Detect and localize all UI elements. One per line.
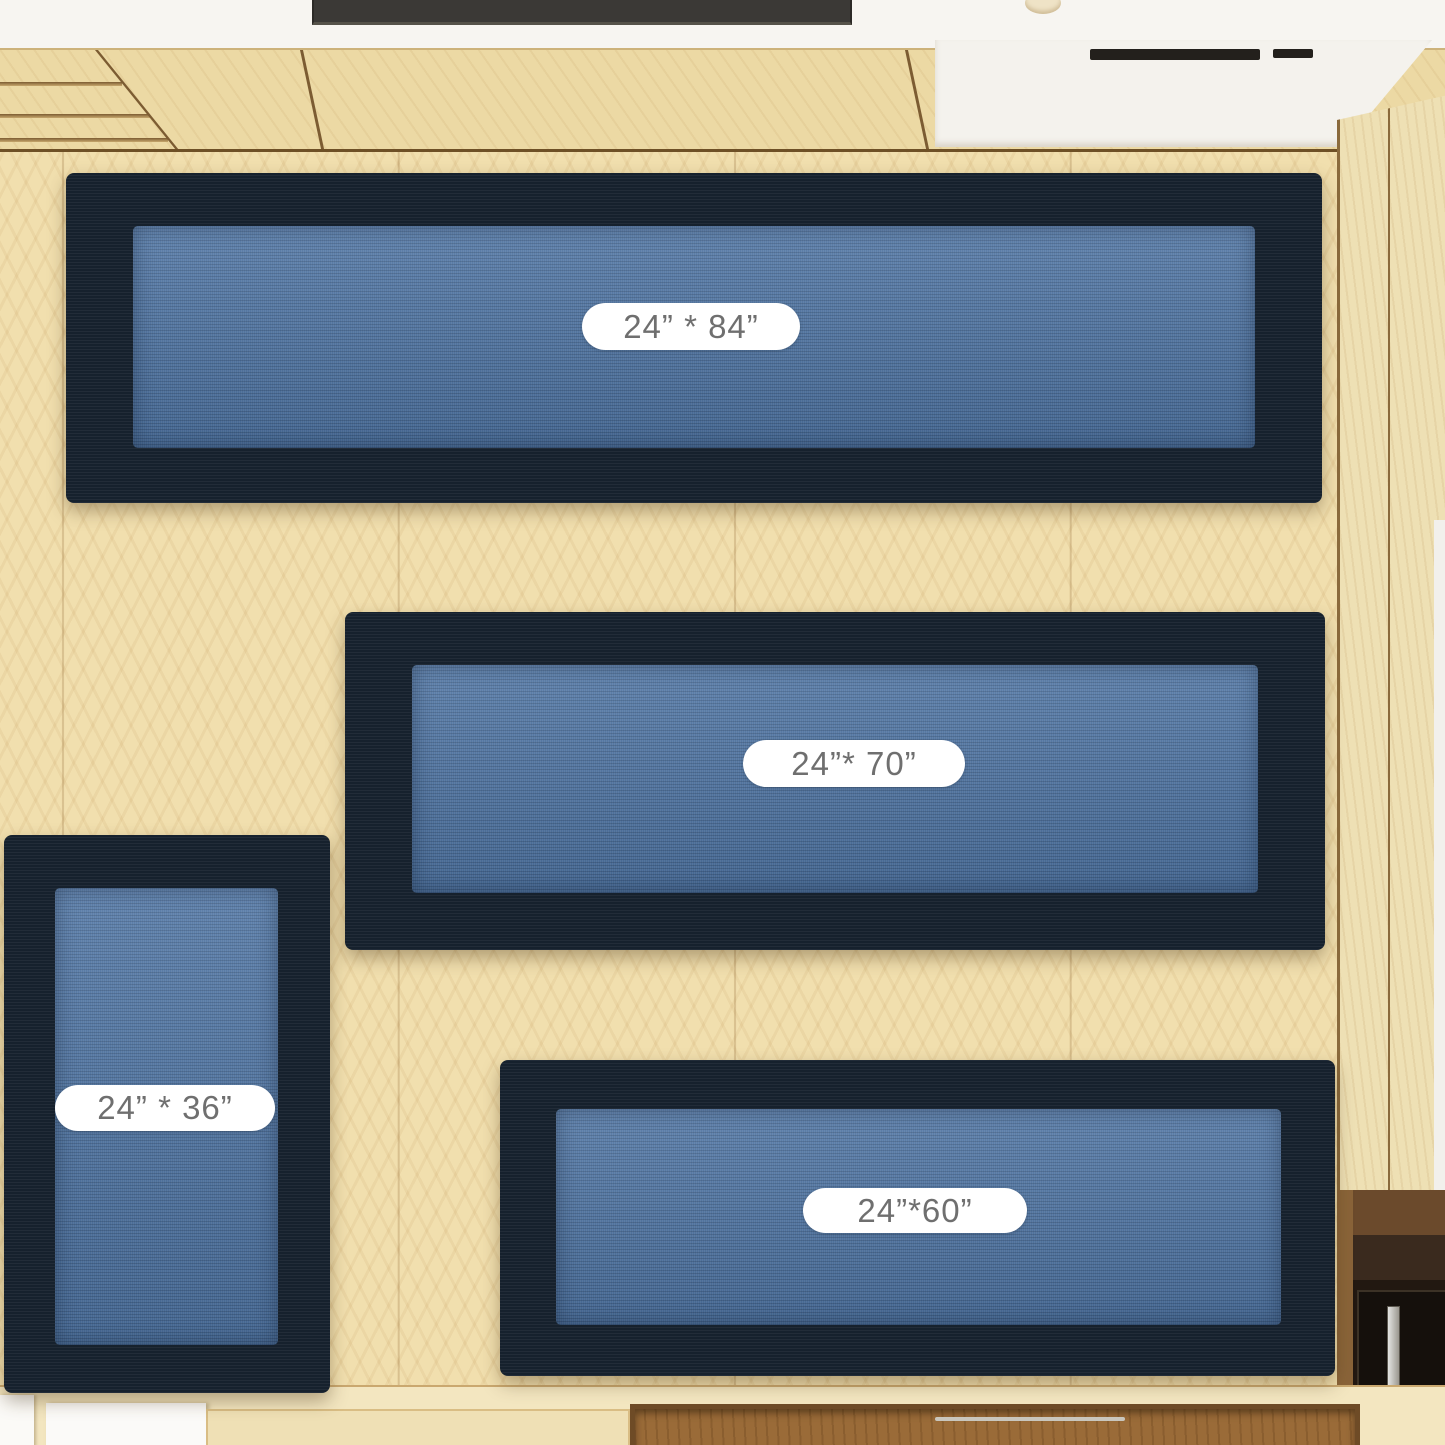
white-furniture (0, 1395, 34, 1445)
white-furniture (46, 1403, 206, 1445)
panel-seam (95, 50, 178, 149)
drawer-slat-line (0, 138, 168, 142)
counter-vent-slot (1090, 49, 1260, 60)
size-label-text: 24”* 70” (791, 745, 916, 783)
size-label-24x60: 24”*60” (803, 1188, 1027, 1233)
floor-edge-strip (0, 1385, 1445, 1445)
counter-vent-slot (1273, 49, 1313, 58)
wood-step (206, 1409, 630, 1445)
size-label-text: 24” * 36” (97, 1089, 233, 1127)
room-scene: 24” * 84” 24”* 70” 24” * 36” 24”*60” (0, 0, 1445, 1445)
drawer-slat-line (0, 82, 122, 86)
size-label-24x70: 24”* 70” (743, 740, 965, 787)
metal-trim-strip (935, 1417, 1125, 1421)
size-label-24x84: 24” * 84” (582, 303, 800, 350)
decor-object (1025, 0, 1061, 14)
size-label-text: 24” * 84” (623, 308, 759, 346)
size-label-text: 24”*60” (857, 1192, 972, 1230)
size-label-24x36: 24” * 36” (55, 1085, 275, 1131)
drawer-slat-line (0, 114, 150, 118)
wood-panel-wall (1337, 95, 1445, 1205)
recessed-floor-panel (630, 1404, 1360, 1445)
panel-seam (905, 50, 929, 149)
panel-seam (300, 50, 324, 149)
wall-mounted-panel (312, 0, 852, 25)
panel-seam (1388, 95, 1390, 1205)
